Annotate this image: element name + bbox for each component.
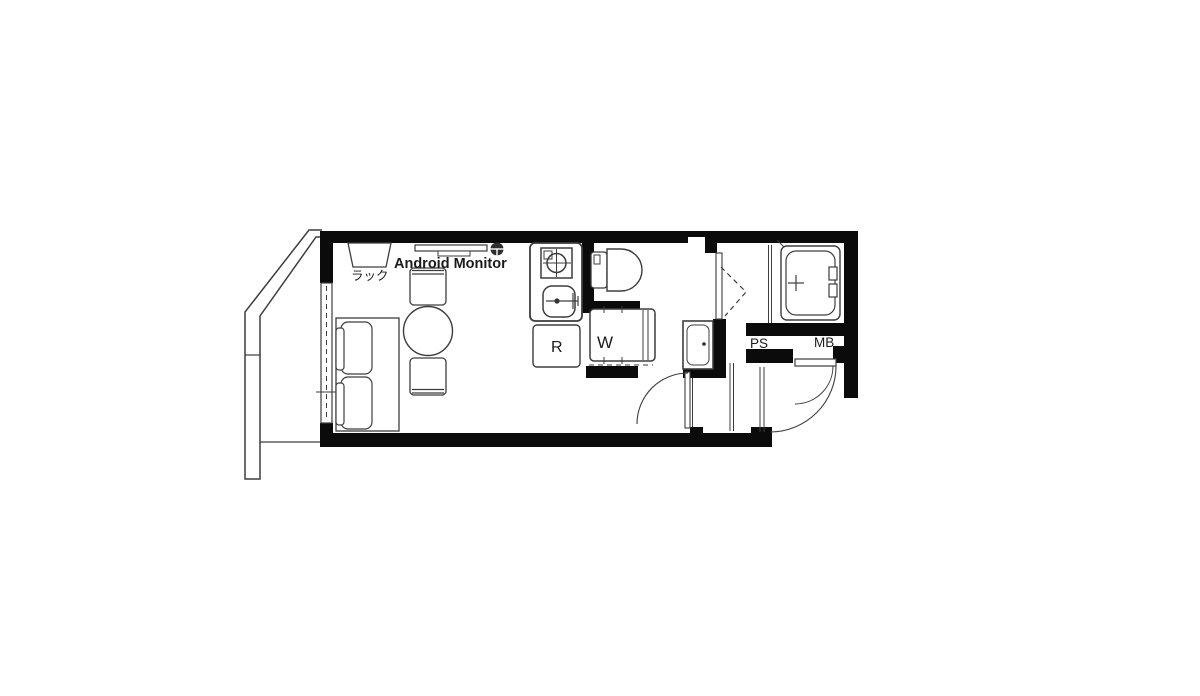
toilet [591,249,642,291]
sofa-backrest [336,328,344,370]
pipe-space-label: PS [750,336,768,351]
bathtub-handle [829,267,837,280]
sliding-window [316,283,336,423]
hall-door-swing-arc [637,373,688,424]
rack-icon [348,243,391,267]
sofa-cushion [341,322,372,374]
hall-door [637,372,690,428]
folding-door-panel [716,253,722,319]
refrigerator-label: R [551,339,563,356]
wall-segment-top [320,231,856,243]
wall-pier-hall-door [690,427,703,435]
kitchen-unit [530,243,582,321]
wall-below-ps [746,349,793,363]
toilet-tank [591,252,607,288]
washbasin-drain [702,342,706,346]
bathroom [769,240,841,323]
wall-joint-notch [688,237,705,243]
monitor-icon [415,245,487,251]
wall-segment-left-top [320,231,333,283]
wall-above-ps-mb [746,323,857,336]
sofa-cushion [341,377,372,429]
sofa [336,318,399,431]
wall-pier-entrance [751,427,772,435]
floorplan-drawing: ラック Android Monitor R W PS MB [0,0,1200,696]
balcony [245,230,322,479]
folding-door [716,253,746,319]
wall-monitor [415,243,504,257]
washing-machine-label: W [597,333,613,352]
dining-set [404,268,453,395]
rack-label: ラック [351,269,389,283]
round-table [404,307,453,356]
sofa-backrest [336,383,344,425]
meter-box-label: MB [814,335,834,350]
floorplan-canvas: ラック Android Monitor R W PS MB [0,0,1200,696]
rack [348,243,391,267]
toilet-bowl [607,249,642,291]
washbasin [683,321,713,369]
bathtub-handle [829,284,837,297]
washbasin-bowl [687,325,709,365]
wall-washroom-bottom-left [586,366,638,378]
wall-segment-right [844,231,858,398]
wall-nub-folding-door-top [705,243,717,253]
entrance-door-leaf [795,359,836,366]
entrance-door-swing-arc [770,366,836,432]
hall-door-panel [685,372,690,428]
wall-segment-bottom [320,433,772,447]
monitor-label: Android Monitor [394,256,507,272]
folding-door-swing [721,267,746,316]
